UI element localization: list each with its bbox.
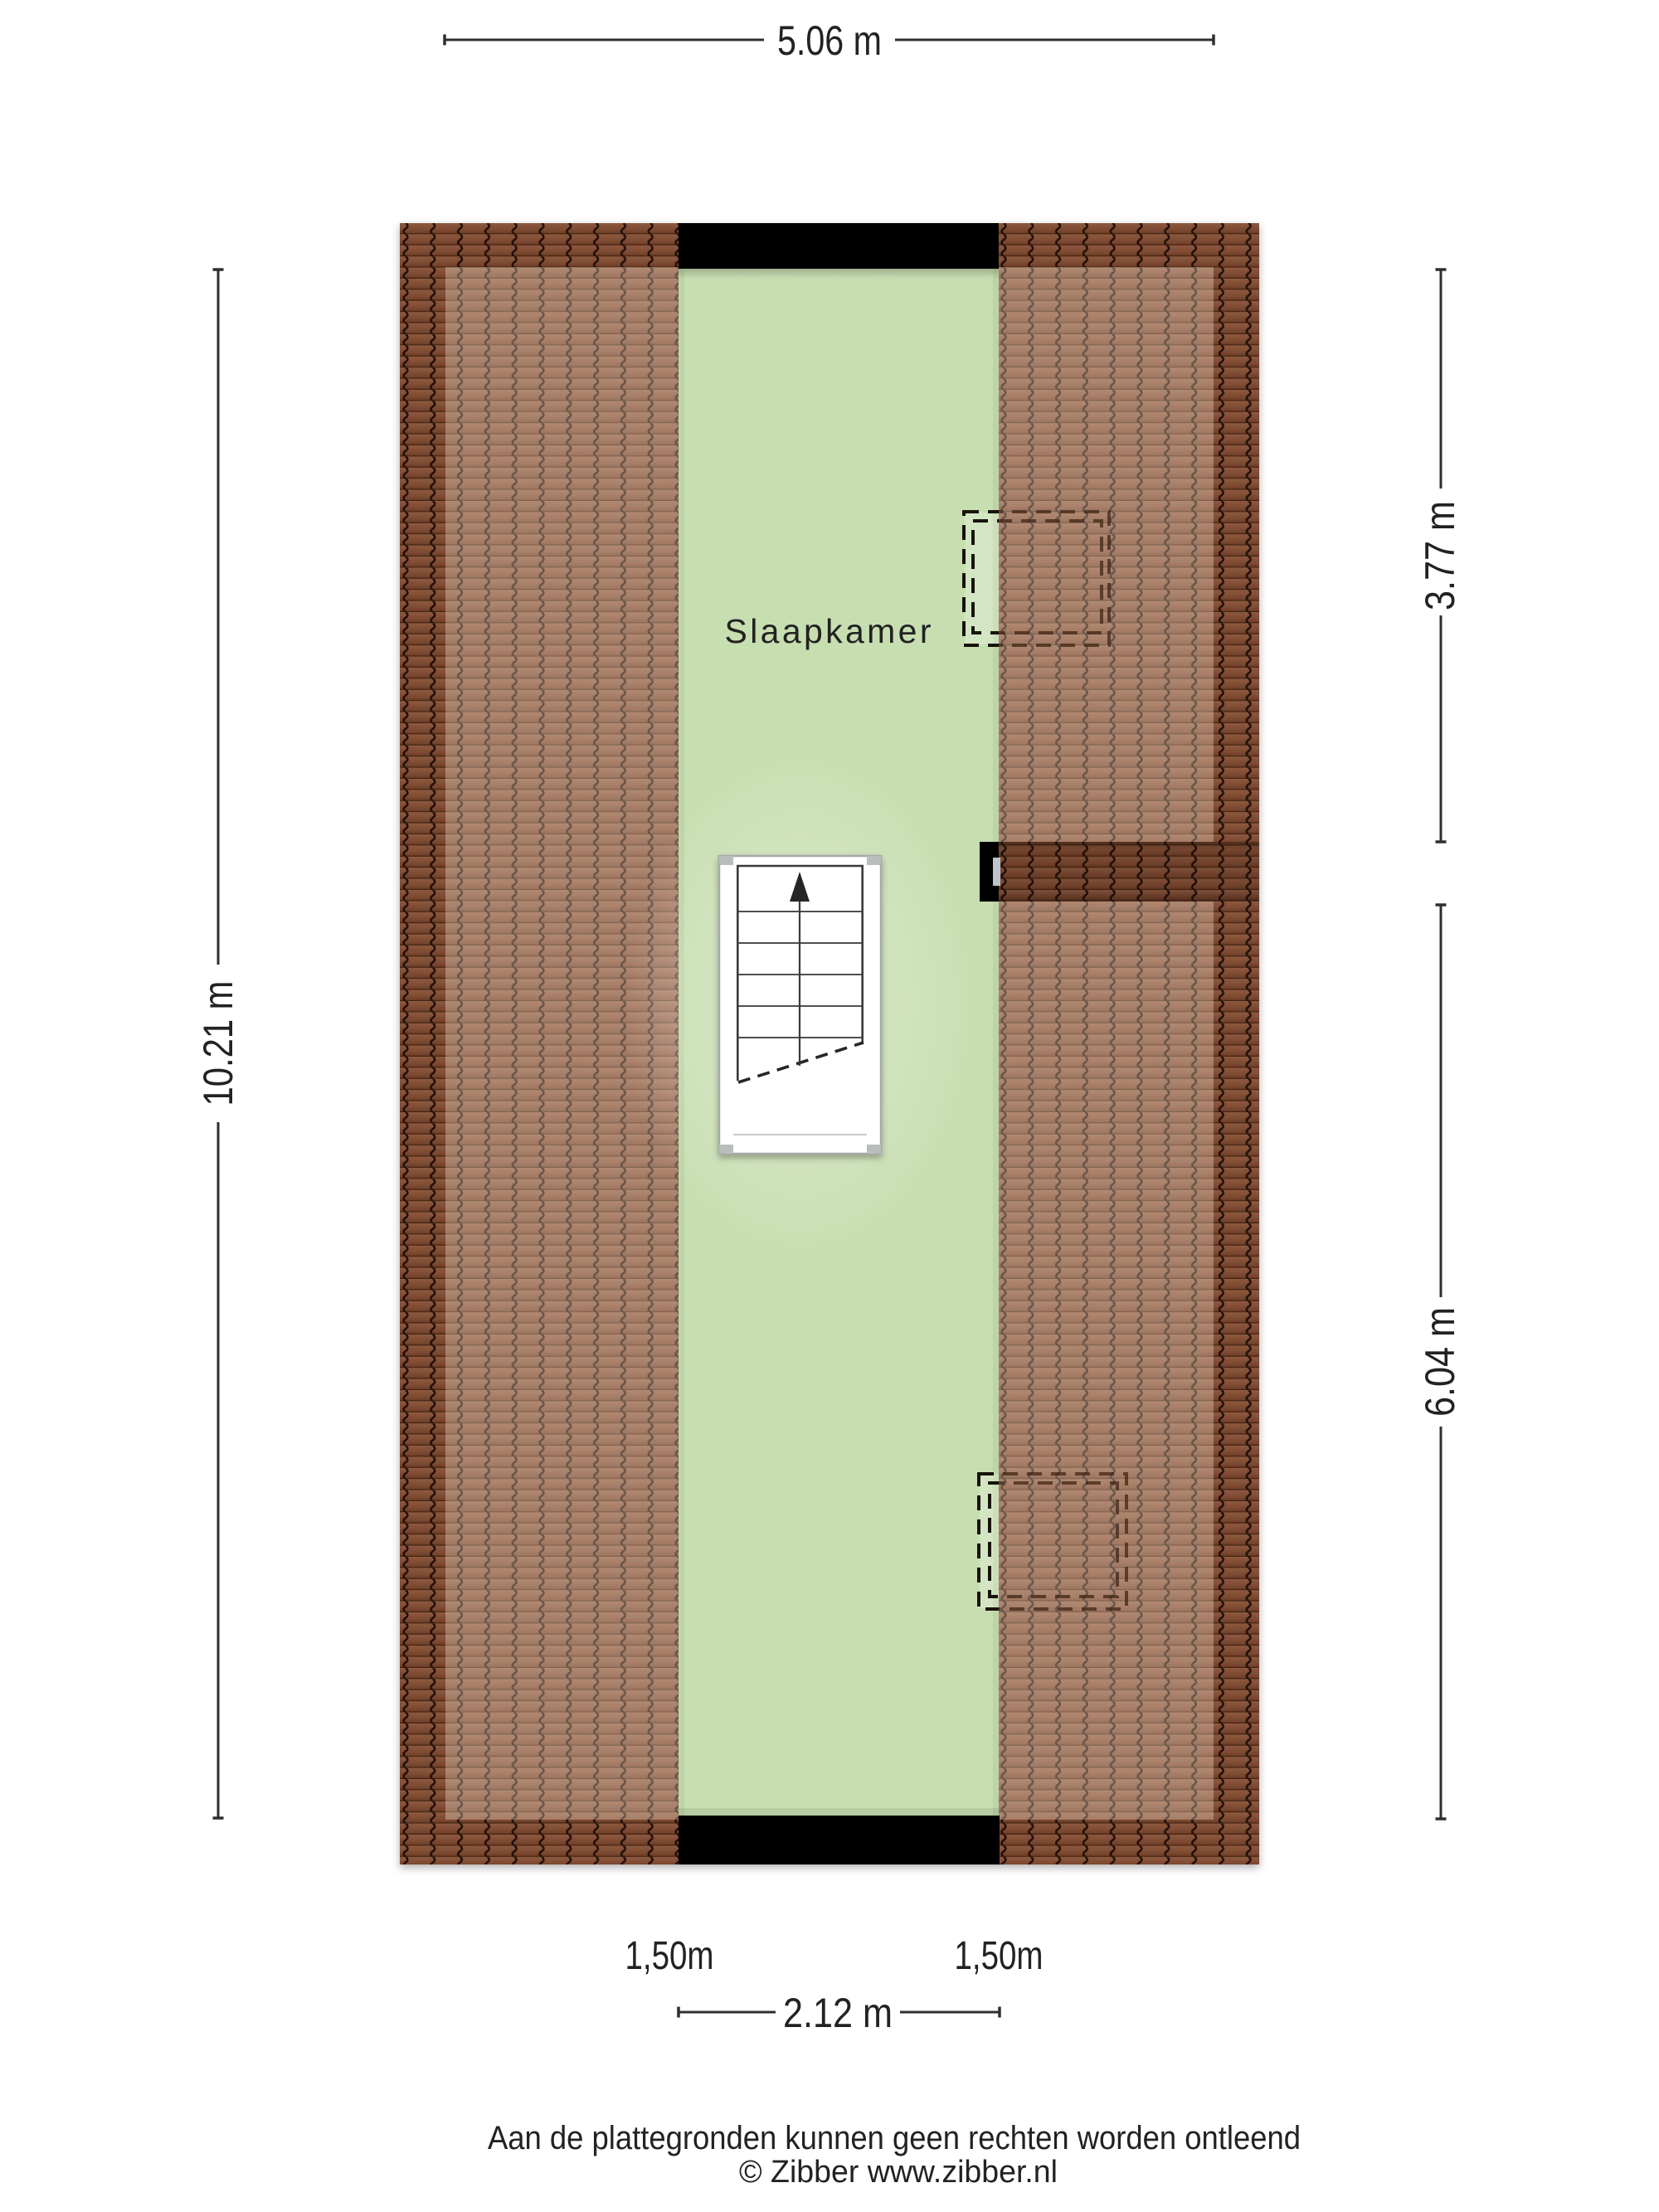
svg-text:2.12 m: 2.12 m: [783, 1990, 893, 2036]
svg-text:10.21 m: 10.21 m: [195, 981, 241, 1106]
svg-text:© Zibber www.zibber.nl: © Zibber www.zibber.nl: [739, 2155, 1058, 2190]
svg-text:Aan de plattegronden kunnen ge: Aan de plattegronden kunnen geen rechten…: [488, 2120, 1301, 2156]
svg-text:1,50m: 1,50m: [625, 1934, 714, 1978]
svg-text:1,50m: 1,50m: [955, 1934, 1044, 1978]
svg-text:3.77 m: 3.77 m: [1417, 501, 1463, 610]
svg-text:Slaapkamer: Slaapkamer: [725, 612, 932, 650]
svg-text:5.06 m: 5.06 m: [777, 17, 882, 64]
svg-text:6.04 m: 6.04 m: [1417, 1307, 1463, 1417]
